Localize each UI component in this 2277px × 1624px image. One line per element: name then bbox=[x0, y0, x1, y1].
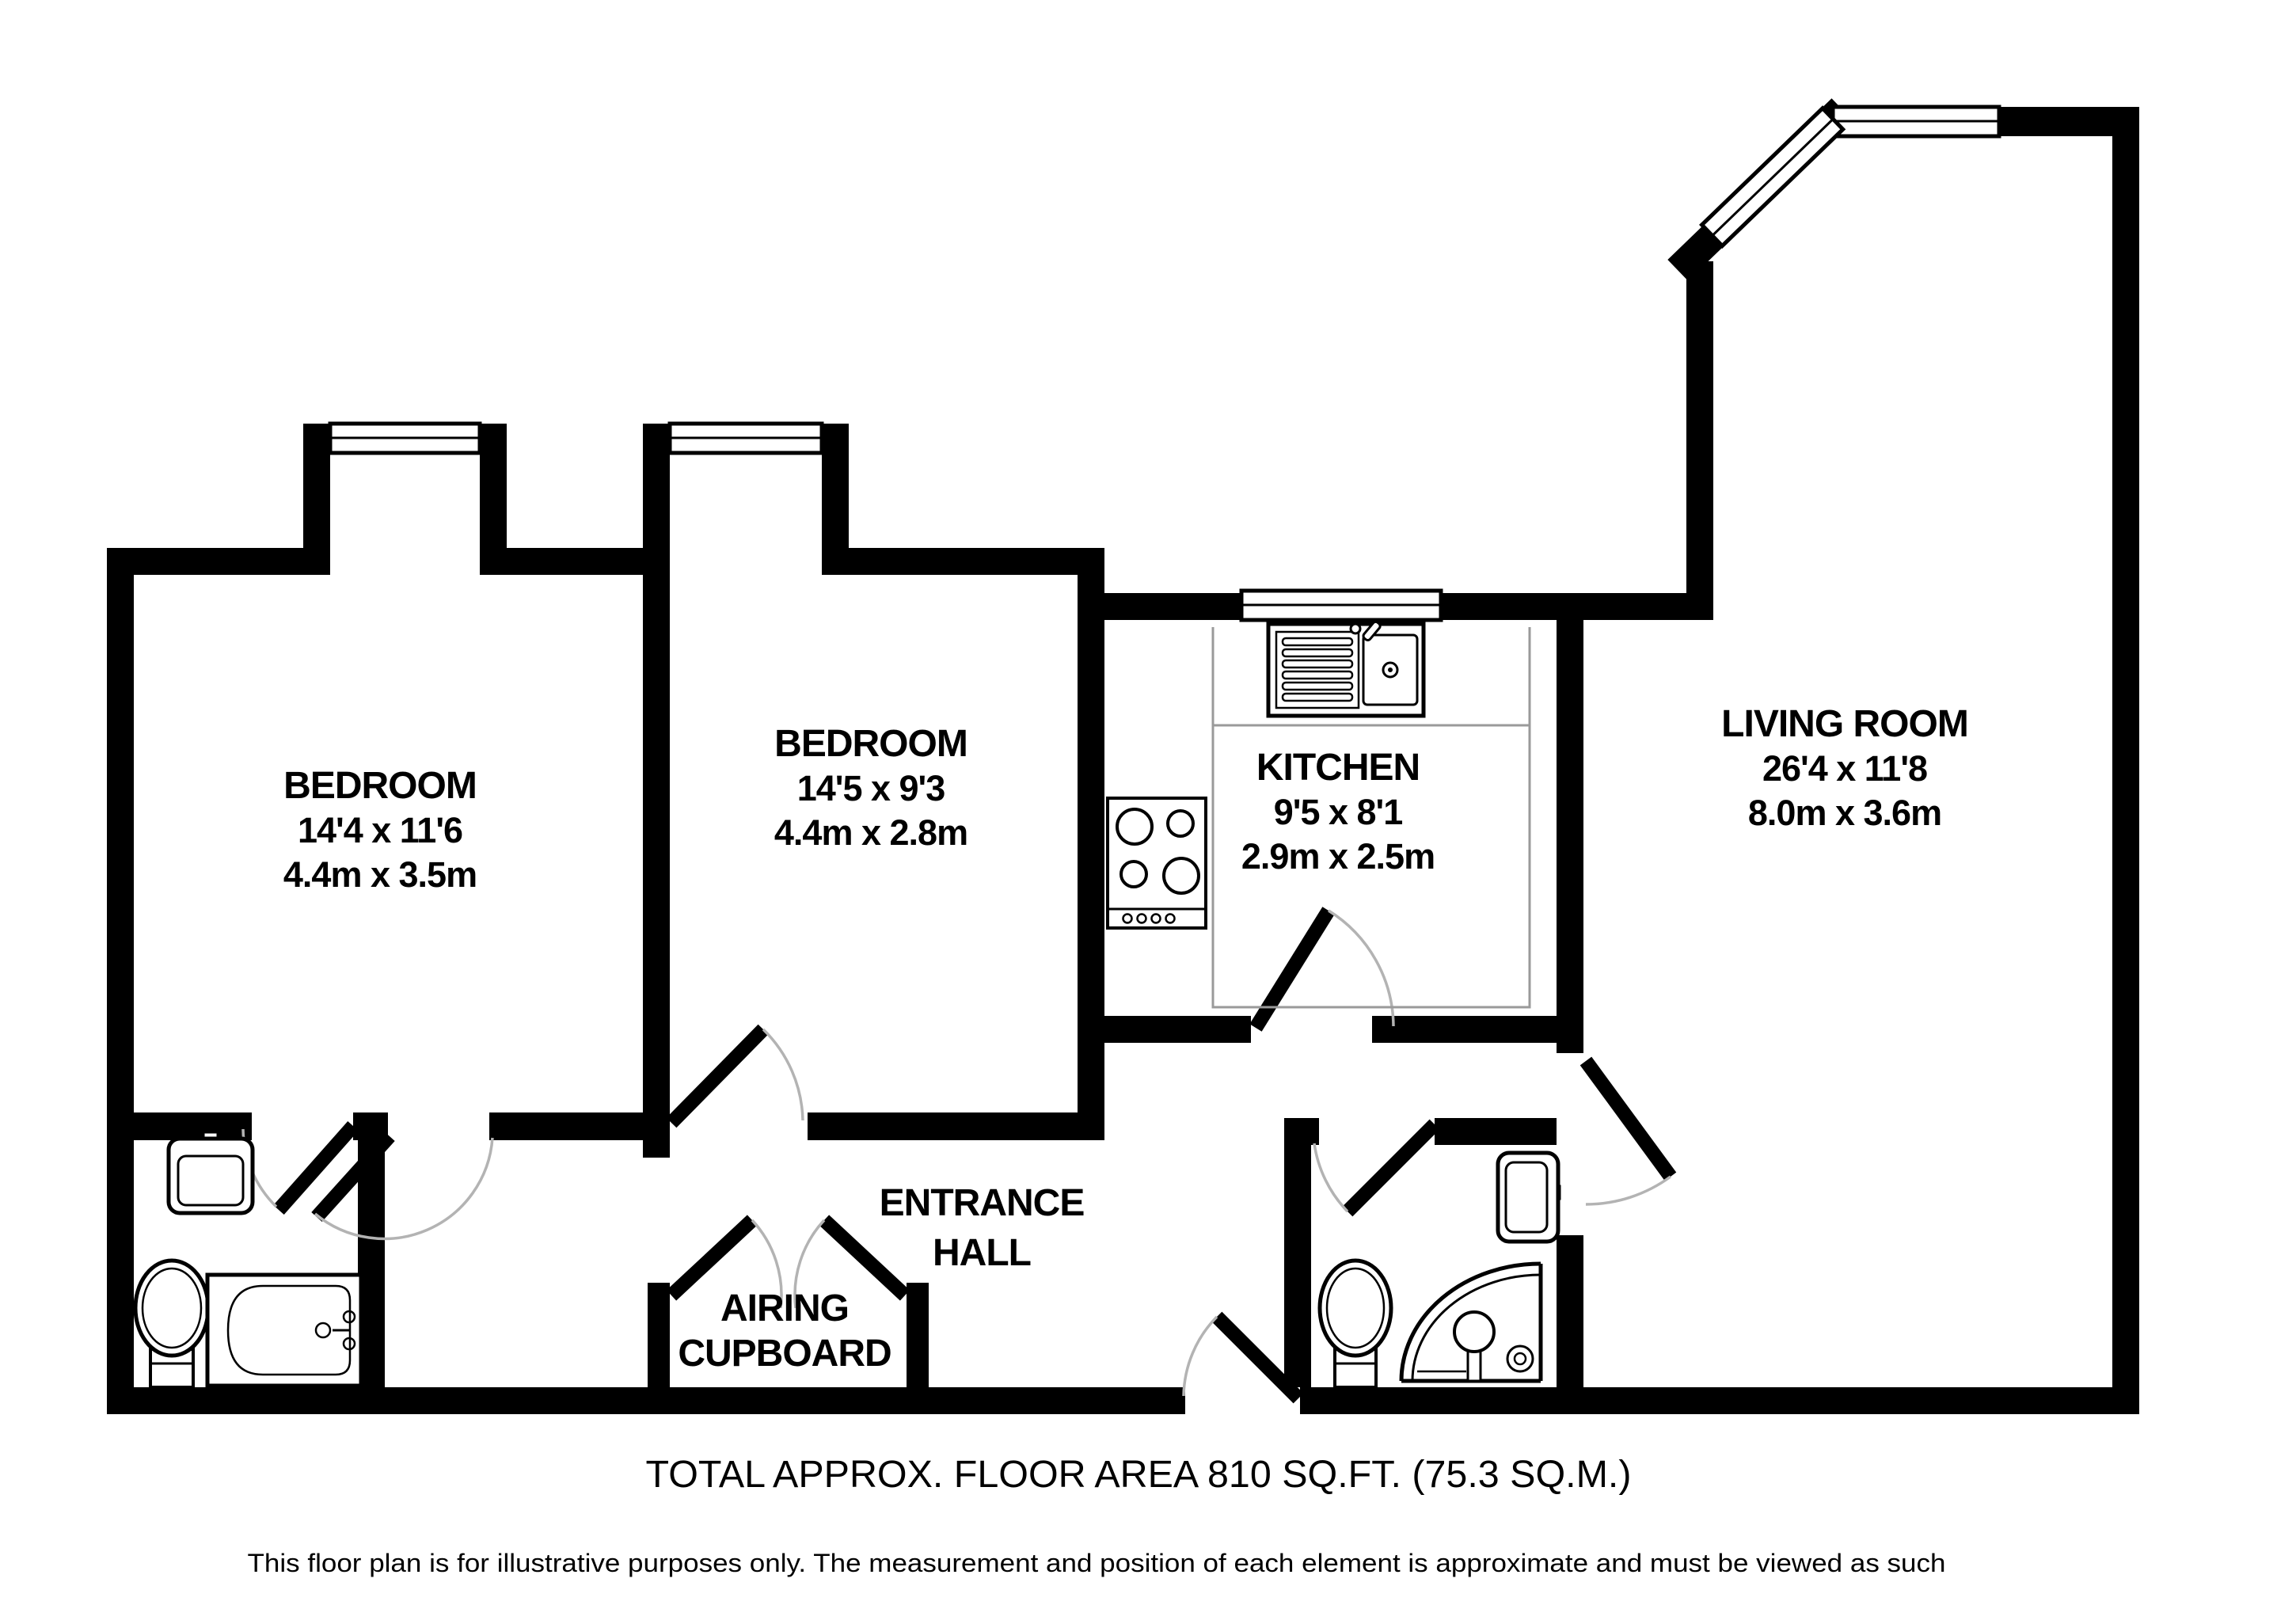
wall-bay1-left bbox=[303, 424, 330, 575]
bedroom1-label: BEDROOM bbox=[283, 765, 477, 807]
livingroom-bay-window-horizontal bbox=[1833, 107, 1999, 136]
floor-plan: BEDROOM 14'4 x 11'6 4.4m x 3.5m BEDROOM … bbox=[0, 0, 2277, 1624]
front-door bbox=[1184, 1317, 1298, 1398]
wall-kitchen-right-upper bbox=[1557, 593, 1583, 1053]
wall-bedroom2-kitchen-divider bbox=[1078, 548, 1104, 1140]
bedroom2-window bbox=[670, 424, 822, 453]
kitchen-hob bbox=[1108, 798, 1206, 928]
bedroom2-size-metric: 4.4m x 2.8m bbox=[774, 812, 967, 853]
bathroom-left-sink bbox=[169, 1132, 253, 1213]
wall-bedrooms-bottom-c bbox=[489, 1112, 643, 1140]
wall-bathroom-right-left bbox=[1284, 1118, 1311, 1387]
livingroom-door bbox=[1586, 1061, 1671, 1204]
wall-kitchen-bottom-left bbox=[1104, 1016, 1251, 1043]
wall-bottom-left bbox=[107, 1387, 1185, 1414]
wall-top-seg2 bbox=[507, 548, 643, 575]
wall-bay2-right bbox=[822, 424, 849, 575]
livingroom-size-imperial: 26'4 x 11'8 bbox=[1762, 748, 1927, 789]
bedroom1-door bbox=[315, 1136, 492, 1238]
wall-bottom-right bbox=[1300, 1387, 2139, 1414]
wall-left bbox=[107, 548, 134, 1414]
entrance-hall-label-line1: ENTRANCE bbox=[880, 1182, 1085, 1224]
bathroom-right-toilet bbox=[1320, 1261, 1391, 1387]
bathroom-right-door bbox=[1314, 1124, 1435, 1211]
disclaimer-text: This floor plan is for illustrative purp… bbox=[248, 1549, 1946, 1577]
wall-kitchen-right-lower bbox=[1557, 1235, 1583, 1414]
bathroom-left-toilet bbox=[135, 1261, 208, 1387]
wall-livingroom-upper-left bbox=[1686, 261, 1713, 620]
footer: TOTAL APPROX. FLOOR AREA 810 SQ.FT. (75.… bbox=[248, 1454, 1946, 1577]
kitchen-size-metric: 2.9m x 2.5m bbox=[1241, 836, 1435, 877]
wall-cupboard-right bbox=[907, 1283, 929, 1387]
wall-kitchen-top-left bbox=[1078, 593, 1241, 620]
bedroom2-size-imperial: 14'5 x 9'3 bbox=[797, 768, 945, 808]
livingroom-size-metric: 8.0m x 3.6m bbox=[1748, 793, 1941, 833]
bedroom1-size-imperial: 14'4 x 11'6 bbox=[298, 810, 462, 850]
bathroom-left-bath bbox=[207, 1275, 361, 1386]
bathroom-right-corner-shower bbox=[1401, 1264, 1541, 1381]
bathroom-left-fixtures bbox=[135, 1132, 361, 1387]
livingroom-bay-window-diagonal bbox=[1702, 108, 1843, 246]
wall-bathroom-right-top-b bbox=[1435, 1118, 1557, 1145]
kitchen-size-imperial: 9'5 x 8'1 bbox=[1274, 792, 1403, 832]
airing-cupboard-label-line1: AIRING bbox=[720, 1287, 849, 1329]
wall-bedroom-divider bbox=[643, 424, 670, 1158]
kitchen-sink bbox=[1268, 621, 1424, 716]
kitchen-label: KITCHEN bbox=[1256, 747, 1420, 789]
wall-bathroom-right-top-a bbox=[1284, 1118, 1319, 1145]
floor-plan-page: BEDROOM 14'4 x 11'6 4.4m x 3.5m BEDROOM … bbox=[0, 0, 2277, 1624]
total-area-text: TOTAL APPROX. FLOOR AREA 810 SQ.FT. (75.… bbox=[646, 1454, 1632, 1496]
airing-cupboard-label-line2: CUPBOARD bbox=[678, 1333, 891, 1375]
bedroom2-label: BEDROOM bbox=[774, 723, 967, 765]
kitchen-door bbox=[1256, 911, 1393, 1028]
bedroom1-window bbox=[330, 424, 480, 453]
wall-bedrooms-bottom-d bbox=[808, 1112, 1078, 1140]
bedroom2-door bbox=[671, 1029, 803, 1123]
bedroom1-size-metric: 4.4m x 3.5m bbox=[283, 854, 477, 895]
livingroom-label: LIVING ROOM bbox=[1721, 703, 1968, 745]
bathroom-right-sink bbox=[1498, 1153, 1560, 1242]
wall-cupboard-left bbox=[648, 1283, 670, 1387]
wall-kitchen-bottom-right bbox=[1372, 1016, 1557, 1043]
wall-bay1-right bbox=[480, 424, 507, 575]
entrance-hall-label-line2: HALL bbox=[933, 1232, 1031, 1274]
wall-livingroom-right bbox=[2112, 107, 2139, 1414]
wall-top-seg1 bbox=[107, 548, 303, 575]
kitchen-window bbox=[1241, 591, 1441, 620]
windows bbox=[330, 107, 1999, 620]
wall-top-seg3 bbox=[849, 548, 1104, 575]
bathroom-right-fixtures bbox=[1320, 1153, 1560, 1387]
